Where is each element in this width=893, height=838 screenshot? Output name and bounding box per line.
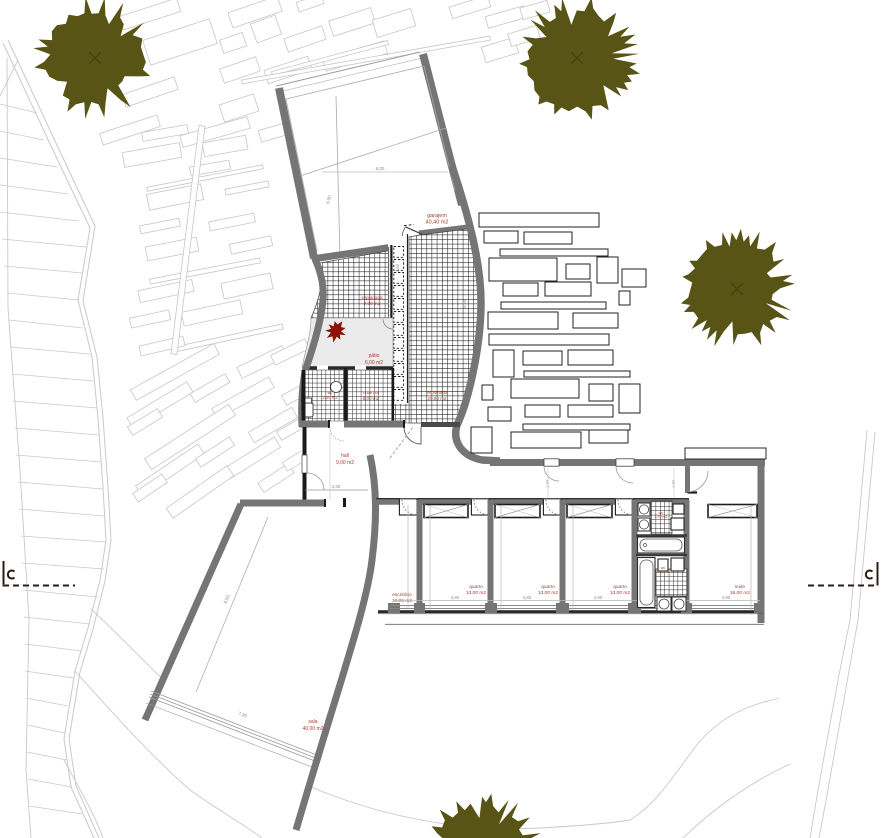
svg-text:13,00 m2: 13,00 m2 [610, 590, 630, 596]
svg-text:2,90: 2,90 [722, 595, 731, 600]
svg-text:4,60 m2: 4,60 m2 [657, 570, 670, 574]
svg-text:escritório: escritório [392, 592, 412, 598]
svg-text:hall: hall [341, 453, 349, 459]
svg-text:esplanada: esplanada [426, 390, 448, 395]
svg-text:9,00 m2: 9,00 m2 [336, 460, 354, 466]
svg-text:esplanada: esplanada [361, 295, 383, 300]
svg-text:garajem: garajem [427, 213, 447, 219]
svg-text:2,80: 2,80 [523, 595, 532, 600]
svg-text:8,00 m2: 8,00 m2 [363, 396, 380, 401]
svg-text:40,40 m2: 40,40 m2 [426, 220, 449, 226]
svg-text:1,40: 1,40 [546, 480, 550, 487]
svg-text:6,00 m2: 6,00 m2 [365, 360, 383, 366]
svg-text:10,00 m2: 10,00 m2 [392, 598, 412, 604]
svg-text:quarto: quarto [469, 584, 483, 590]
svg-text:13,00 m2: 13,00 m2 [538, 590, 558, 596]
svg-text:2,80: 2,80 [332, 484, 341, 489]
svg-text:2,60: 2,60 [395, 263, 400, 272]
svg-text:3,70 m2: 3,70 m2 [655, 515, 668, 519]
svg-text:16,00 m2: 16,00 m2 [730, 590, 750, 596]
svg-text:2,80: 2,80 [594, 595, 603, 600]
svg-text:40,00 m2: 40,00 m2 [303, 726, 324, 732]
svg-text:pátio: pátio [369, 353, 380, 359]
svg-text:cozinha: cozinha [363, 390, 379, 395]
svg-text:13,00 m2: 13,00 m2 [466, 590, 486, 596]
svg-text:7,00 m2: 7,00 m2 [364, 301, 381, 306]
svg-text:quarto: quarto [613, 584, 627, 590]
svg-text:quarto: quarto [541, 584, 555, 590]
svg-text:suite: suite [735, 584, 745, 590]
svg-text:sala: sala [308, 719, 317, 725]
svg-text:2,90: 2,90 [451, 595, 460, 600]
svg-text:2,00 m2: 2,00 m2 [322, 395, 338, 400]
svg-text:4,50: 4,50 [462, 299, 467, 308]
svg-text:6,00: 6,00 [376, 166, 385, 171]
svg-text:20,00 m2: 20,00 m2 [427, 396, 447, 401]
svg-text:1,40: 1,40 [672, 480, 676, 487]
